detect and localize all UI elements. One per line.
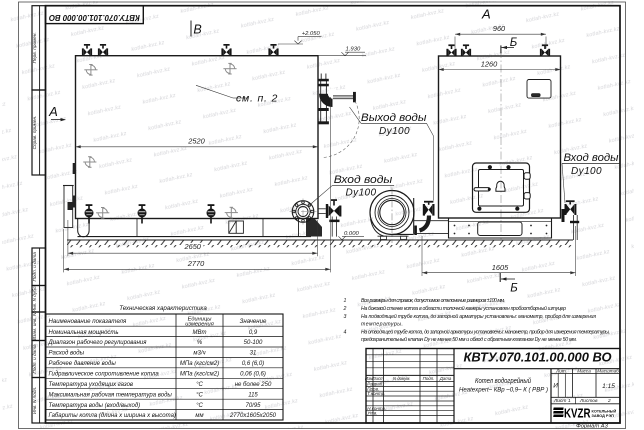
svg-text:1: 1 bbox=[344, 298, 347, 304]
svg-text:КВТУ.070.101.00.000 ВО: КВТУ.070.101.00.000 ВО bbox=[464, 350, 613, 365]
svg-text:2650: 2650 bbox=[183, 242, 201, 251]
svg-text:Подп.: Подп. bbox=[423, 376, 435, 381]
svg-text:0.000: 0.000 bbox=[344, 231, 359, 237]
svg-text:Температура уходящих газов: Температура уходящих газов bbox=[49, 382, 134, 388]
svg-text:температуры.: температуры. bbox=[361, 322, 403, 328]
svg-text:KVZR: KVZR bbox=[564, 405, 591, 420]
svg-text:Формат А3: Формат А3 bbox=[576, 423, 608, 429]
svg-text:Котел водогрейный: Котел водогрейный bbox=[475, 377, 531, 385]
svg-text:Инв. N дубл.: Инв. N дубл. bbox=[32, 285, 37, 312]
svg-text:Расход воды: Расход воды bbox=[49, 351, 85, 357]
svg-text:Б: Б bbox=[510, 37, 518, 49]
svg-text:1:15: 1:15 bbox=[602, 383, 615, 390]
svg-text:ЗАВОД РЭП: ЗАВОД РЭП bbox=[592, 414, 615, 418]
svg-text:КОТЕЛЬНЫЙ: КОТЕЛЬНЫЙ bbox=[592, 409, 617, 413]
svg-text:°С: °С bbox=[196, 392, 203, 398]
svg-text:МВт: МВт bbox=[193, 330, 207, 336]
svg-text:Выход воды: Выход воды bbox=[361, 112, 427, 124]
svg-text:Heatexpert– КВр –0,9– К ( РВР: Heatexpert– КВр –0,9– К ( РВР ) bbox=[459, 387, 548, 394]
svg-text:Гидравлическое сопротивление к: Гидравлическое сопротивление котла bbox=[49, 372, 160, 378]
svg-text:Номинальная мощность: Номинальная мощность bbox=[49, 330, 119, 336]
svg-text:Максимальная рабочая температу: Максимальная рабочая температура воды bbox=[49, 392, 173, 398]
svg-text:Инв. N подл.: Инв. N подл. bbox=[32, 387, 37, 414]
svg-text:2770х1605х2050: 2770х1605х2050 bbox=[229, 413, 277, 419]
svg-text:2: 2 bbox=[343, 306, 347, 312]
svg-text:Подп. и дата: Подп. и дата bbox=[32, 344, 37, 374]
svg-text:Т.контр.: Т.контр. bbox=[367, 391, 385, 396]
svg-text:Техническая характеристика: Техническая характеристика bbox=[119, 305, 207, 312]
svg-text:Б: Б bbox=[510, 283, 518, 295]
svg-text:Лист: Лист bbox=[372, 376, 385, 381]
svg-text:4: 4 bbox=[344, 330, 347, 336]
svg-text:МПа (кгс/см2): МПа (кгс/см2) bbox=[180, 361, 219, 367]
svg-text:31: 31 bbox=[250, 351, 257, 357]
svg-text:В: В bbox=[193, 23, 201, 37]
svg-text:Dy100: Dy100 bbox=[379, 126, 410, 137]
svg-text:2770: 2770 bbox=[187, 259, 205, 268]
svg-text:115: 115 bbox=[248, 392, 258, 398]
svg-text:70/95: 70/95 bbox=[245, 403, 261, 409]
svg-text:Масштаб: Масштаб bbox=[597, 368, 619, 373]
svg-text:Перв. примен.: Перв. примен. bbox=[32, 32, 37, 63]
svg-text:Лист: Лист bbox=[553, 398, 566, 404]
svg-text:1.930: 1.930 bbox=[346, 47, 361, 53]
svg-text:м3/ч: м3/ч bbox=[193, 351, 205, 357]
svg-text:0,6 (6,0): 0,6 (6,0) bbox=[242, 361, 264, 367]
svg-text:Вход воды: Вход воды bbox=[564, 152, 619, 164]
svg-text:измерения: измерения bbox=[185, 322, 213, 328]
svg-text:предохранительный клапан Dу не: предохранительный клапан Dу не менее 50 … bbox=[361, 336, 577, 343]
svg-text:Dy100: Dy100 bbox=[571, 166, 602, 177]
svg-text:И: И bbox=[553, 383, 558, 390]
svg-text:Температура воды (вход/выход): Температура воды (вход/выход) bbox=[49, 403, 141, 409]
svg-text:см. п. 2: см. п. 2 bbox=[236, 93, 278, 105]
svg-text:Справ. примен.: Справ. примен. bbox=[32, 116, 37, 150]
svg-text:Значение: Значение bbox=[240, 318, 267, 325]
svg-text:Все размеры для справок, допус: Все размеры для справок, допустимое откл… bbox=[361, 298, 505, 304]
svg-text:1260: 1260 bbox=[481, 60, 498, 69]
svg-text:Наименование показателя: Наименование показателя bbox=[49, 318, 127, 325]
svg-text:Листов: Листов bbox=[579, 398, 598, 404]
svg-text:КВТУ.070.101.00.000 ВО: КВТУ.070.101.00.000 ВО bbox=[48, 13, 140, 22]
svg-text:50-100: 50-100 bbox=[244, 340, 263, 346]
svg-text:Рабочее давление воды: Рабочее давление воды bbox=[49, 361, 117, 367]
svg-text:Взам. инв. N: Взам. инв. N bbox=[32, 312, 37, 340]
svg-text:1605: 1605 bbox=[492, 263, 509, 272]
svg-text:На подводящей трубе котла, до: На подводящей трубе котла, до запорной а… bbox=[361, 313, 596, 320]
svg-text:+2.050: +2.050 bbox=[302, 31, 321, 37]
svg-text:2: 2 bbox=[607, 398, 611, 404]
svg-text:3: 3 bbox=[344, 314, 347, 320]
svg-text:Dy100: Dy100 bbox=[346, 188, 377, 199]
svg-text:Вход воды: Вход воды bbox=[334, 174, 393, 186]
svg-text:0,9: 0,9 bbox=[249, 330, 258, 336]
svg-text:А: А bbox=[48, 104, 58, 119]
svg-text:мм: мм bbox=[195, 413, 203, 419]
svg-text:А: А bbox=[481, 7, 491, 22]
svg-text:2520: 2520 bbox=[187, 137, 205, 146]
svg-text:°С: °С bbox=[196, 403, 203, 409]
svg-text:Габариты котла (длина х ширина: Габариты котла (длина х ширина х высота) bbox=[49, 413, 176, 419]
svg-text:0,06 (0,6): 0,06 (0,6) bbox=[240, 372, 266, 378]
svg-text:Диапазон рабочего регулировани: Диапазон рабочего регулирования bbox=[48, 340, 148, 346]
svg-text:На отводящей трубе котла, до з: На отводящей трубе котла, до запорной ар… bbox=[361, 329, 610, 336]
svg-text:960: 960 bbox=[493, 24, 506, 33]
svg-text:Утв.: Утв. bbox=[367, 411, 377, 416]
svg-text:Лит.: Лит. bbox=[555, 368, 567, 373]
svg-text:не более 250: не более 250 bbox=[235, 382, 272, 388]
svg-text:МПа (кгс/см2): МПа (кгс/см2) bbox=[180, 372, 219, 378]
svg-text:°С: °С bbox=[196, 382, 203, 388]
svg-text:1: 1 bbox=[568, 398, 571, 404]
svg-text:На боковой стенке котла в обла: На боковой стенке котла в области топочн… bbox=[361, 305, 566, 312]
svg-text:Дата: Дата bbox=[439, 376, 452, 381]
svg-text:N докум.: N докум. bbox=[393, 376, 411, 381]
svg-text:Масса: Масса bbox=[577, 368, 591, 373]
svg-text:Подп. и дата: Подп. и дата bbox=[32, 252, 37, 282]
svg-text:%: % bbox=[197, 340, 203, 346]
